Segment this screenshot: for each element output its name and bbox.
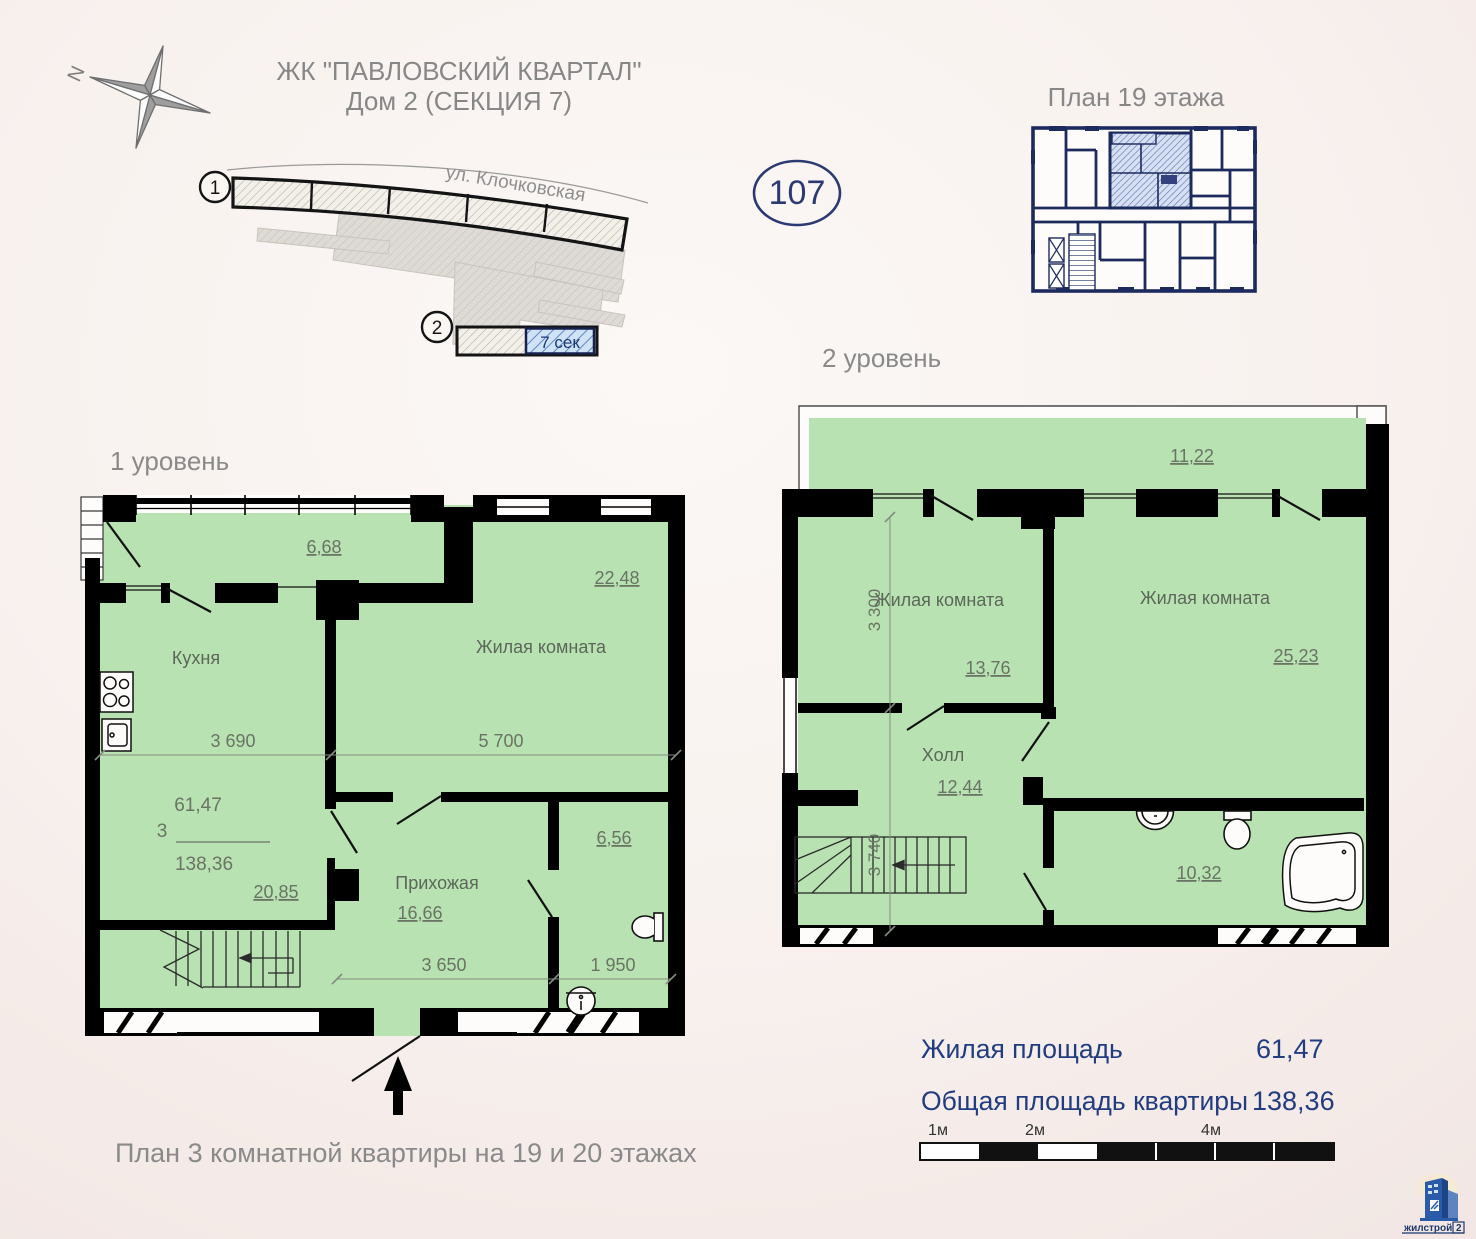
svg-text:12,44: 12,44: [937, 777, 982, 797]
svg-text:План 3 комнатной квартиры на 1: План 3 комнатной квартиры на 19 и 20 эта…: [115, 1138, 697, 1168]
svg-text:6,56: 6,56: [596, 828, 631, 848]
svg-text:План 19 этажа: План 19 этажа: [1048, 82, 1225, 112]
svg-text:Прихожая: Прихожая: [395, 873, 478, 893]
svg-text:2 уровень: 2 уровень: [822, 343, 941, 373]
svg-text:Жилая комната: Жилая комната: [476, 637, 607, 657]
svg-text:22,48: 22,48: [594, 568, 639, 588]
svg-text:2: 2: [432, 318, 443, 339]
svg-text:1 950: 1 950: [590, 955, 635, 975]
svg-text:1м: 1м: [928, 1122, 948, 1139]
svg-text:138,36: 138,36: [175, 854, 233, 875]
svg-text:10,32: 10,32: [1176, 863, 1221, 883]
svg-text:2м: 2м: [1025, 1122, 1045, 1139]
svg-text:1: 1: [210, 178, 221, 199]
svg-text:Общая площадь квартиры: Общая площадь квартиры: [921, 1086, 1248, 1116]
svg-text:3 650: 3 650: [421, 955, 466, 975]
svg-text:Дом 2 (СЕКЦИЯ 7): Дом 2 (СЕКЦИЯ 7): [346, 86, 572, 116]
svg-text:3 690: 3 690: [210, 731, 255, 751]
svg-text:107: 107: [769, 174, 826, 212]
svg-text:5 700: 5 700: [478, 731, 523, 751]
svg-text:2: 2: [1456, 1223, 1462, 1234]
svg-text:6,68: 6,68: [306, 537, 341, 557]
svg-text:61,47: 61,47: [1256, 1034, 1324, 1064]
svg-text:20,85: 20,85: [253, 882, 298, 902]
svg-text:7 сек: 7 сек: [540, 333, 580, 352]
svg-text:ЖК "ПАВЛОВСКИЙ КВАРТАЛ": ЖК "ПАВЛОВСКИЙ КВАРТАЛ": [276, 56, 641, 86]
svg-text:жилстрой: жилстрой: [1403, 1223, 1452, 1234]
svg-text:Жилая комната: Жилая комната: [1140, 588, 1271, 608]
svg-text:4м: 4м: [1201, 1122, 1221, 1139]
svg-text:25,23: 25,23: [1273, 646, 1318, 666]
svg-text:Холл: Холл: [922, 745, 964, 765]
svg-text:Жилая площадь: Жилая площадь: [921, 1034, 1123, 1064]
svg-text:11,22: 11,22: [1170, 446, 1214, 466]
svg-text:16,66: 16,66: [397, 903, 442, 923]
svg-text:1 уровень: 1 уровень: [110, 446, 229, 476]
svg-text:3: 3: [157, 821, 168, 842]
svg-text:Жилая комната: Жилая комната: [874, 590, 1005, 610]
svg-text:3 740: 3 740: [865, 834, 884, 877]
svg-text:138,36: 138,36: [1252, 1086, 1335, 1116]
svg-text:61,47: 61,47: [174, 795, 222, 816]
svg-text:13,76: 13,76: [965, 658, 1010, 678]
svg-text:Кухня: Кухня: [172, 648, 220, 668]
